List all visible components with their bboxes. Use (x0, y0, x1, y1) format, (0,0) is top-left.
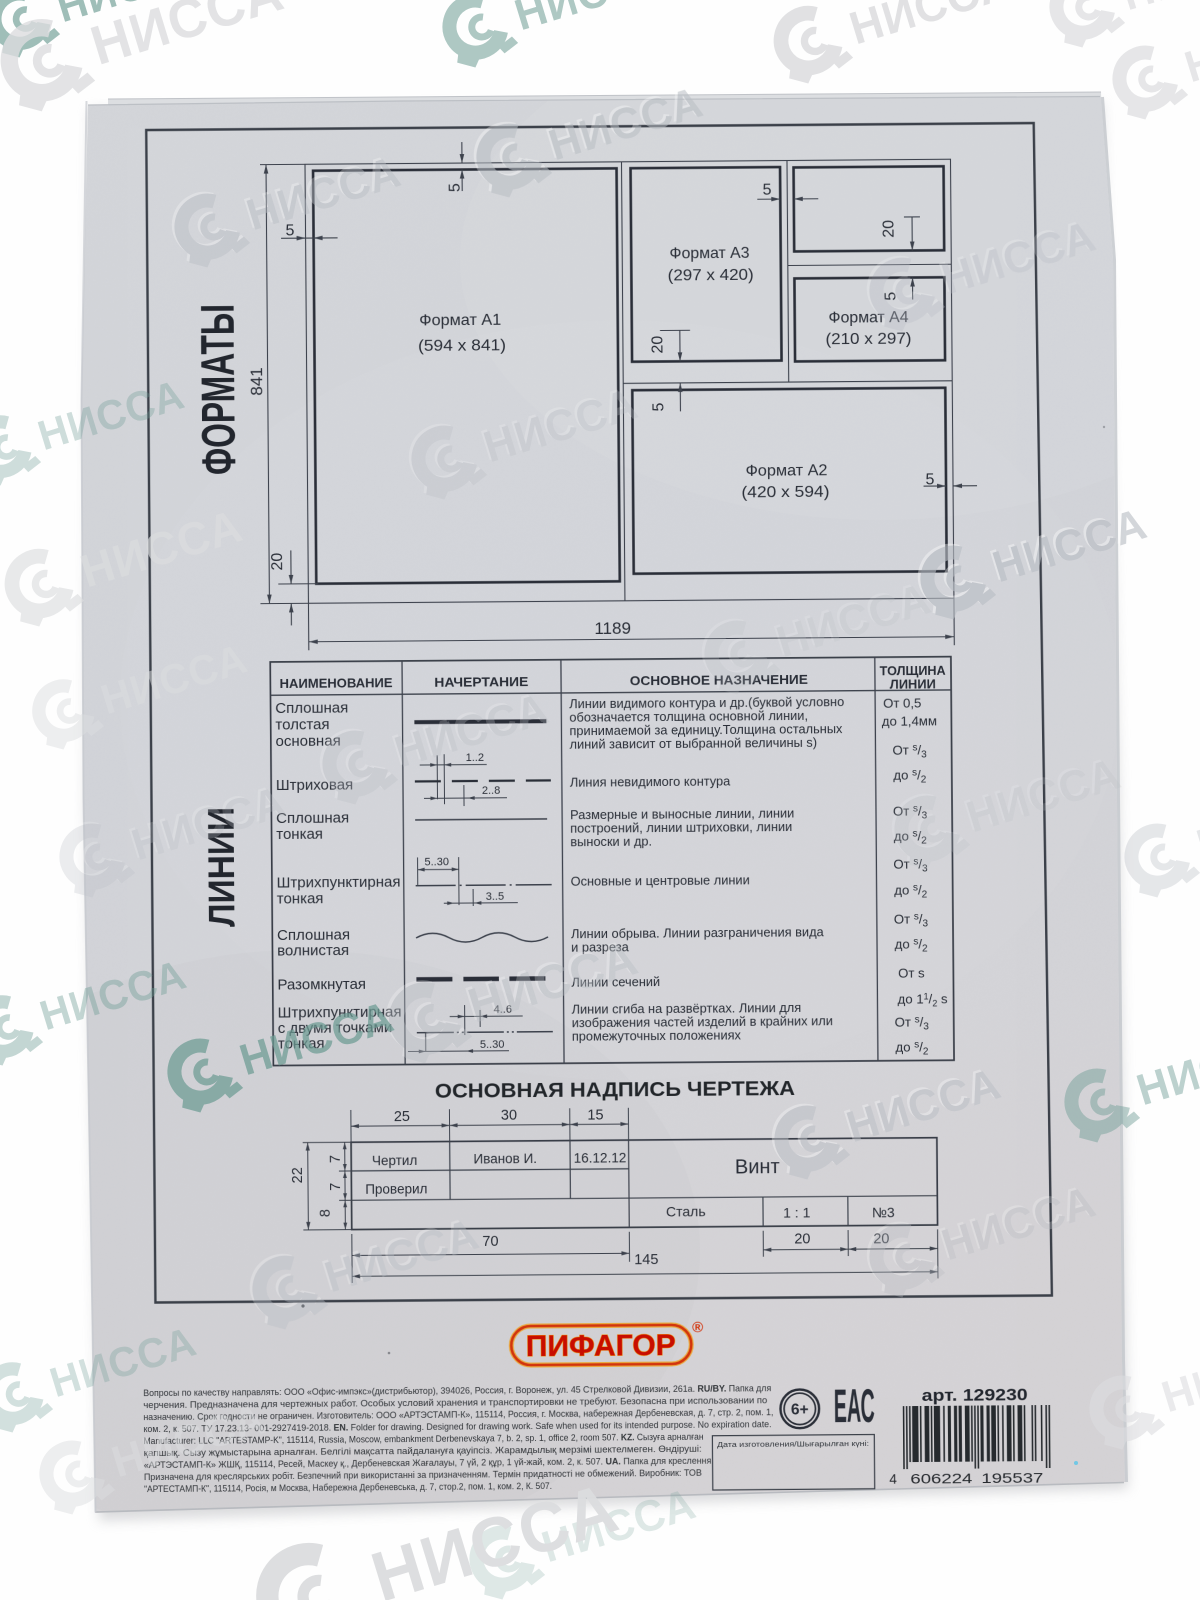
svg-text:4: 4 (889, 1472, 897, 1487)
svg-text:толстая: толстая (275, 716, 329, 733)
svg-text:ЕАС: ЕАС (834, 1379, 875, 1432)
svg-text:Проверил: Проверил (365, 1181, 427, 1196)
svg-text:2..8: 2..8 (482, 785, 500, 797)
svg-text:195537: 195537 (981, 1471, 1043, 1486)
svg-text:выноски и др.: выноски и др. (570, 834, 652, 850)
svg-text:Формат А1: Формат А1 (419, 312, 501, 330)
svg-text:Линия невидимого контура: Линия невидимого контура (570, 773, 731, 789)
svg-text:22: 22 (290, 1167, 306, 1183)
svg-text:Формат А3: Формат А3 (669, 245, 749, 263)
svg-text:ОСНОВНАЯ НАДПИСЬ ЧЕРТЕЖА: ОСНОВНАЯ НАДПИСЬ ЧЕРТЕЖА (435, 1078, 795, 1103)
svg-text:Иванов И.: Иванов И. (473, 1151, 537, 1166)
svg-text:30: 30 (501, 1108, 517, 1124)
svg-text:НАЧЕРТАНИЕ: НАЧЕРТАНИЕ (434, 674, 528, 690)
svg-text:арт. 129230: арт. 129230 (922, 1386, 1028, 1405)
svg-text:1189: 1189 (594, 619, 631, 638)
svg-text:№3: №3 (872, 1204, 895, 1220)
svg-text:5..30: 5..30 (424, 856, 449, 868)
svg-text:до 11/2 s: до 11/2 s (898, 991, 949, 1008)
svg-text:8: 8 (318, 1209, 334, 1217)
svg-text:20: 20 (794, 1231, 810, 1247)
svg-text:Штрихпунктирная: Штрихпунктирная (277, 874, 401, 892)
svg-text:25: 25 (394, 1109, 410, 1125)
svg-text:5: 5 (762, 182, 771, 199)
svg-text:до 1,4мм: до 1,4мм (882, 713, 937, 728)
svg-text:5: 5 (447, 183, 464, 192)
svg-text:20: 20 (649, 336, 666, 354)
svg-text:ФОРМАТЫ: ФОРМАТЫ (191, 304, 245, 475)
svg-text:линий зависит от выбранной вел: линий зависит от выбранной величины s) (570, 735, 818, 752)
svg-text:тонкая: тонкая (276, 826, 323, 843)
svg-text:7: 7 (328, 1155, 344, 1163)
svg-text:Дата изготовления/Шығарылған к: Дата изготовления/Шығарылған күні: (717, 1439, 869, 1449)
svg-text:От s: От s (898, 965, 925, 980)
svg-text:Чертил: Чертил (372, 1153, 417, 1168)
svg-text:Основные и центровые линии: Основные и центровые линии (571, 872, 750, 888)
svg-text:промежуточных положениях: промежуточных положениях (572, 1027, 742, 1043)
svg-text:20: 20 (269, 553, 286, 571)
svg-text:5: 5 (650, 402, 667, 411)
svg-text:Сплошная: Сплошная (275, 699, 348, 717)
svg-text:Разомкнутая: Разомкнутая (277, 976, 366, 994)
svg-text:1 : 1: 1 : 1 (783, 1204, 811, 1220)
svg-text:20: 20 (880, 220, 897, 238)
svg-text:7: 7 (328, 1183, 344, 1191)
svg-text:6+: 6+ (791, 1401, 809, 1418)
svg-text:®: ® (692, 1319, 703, 1336)
svg-text:145: 145 (634, 1252, 658, 1268)
svg-text:3..5: 3..5 (486, 891, 504, 903)
svg-text:тонкая: тонкая (277, 890, 324, 907)
svg-text:606224: 606224 (910, 1471, 973, 1486)
svg-text:15: 15 (587, 1107, 603, 1123)
svg-text:70: 70 (482, 1234, 498, 1250)
svg-text:Винт: Винт (735, 1156, 780, 1178)
svg-text:16.12.12: 16.12.12 (574, 1150, 627, 1165)
svg-text:волнистая: волнистая (277, 942, 349, 960)
svg-text:(420 х 594): (420 х 594) (741, 484, 829, 502)
svg-text:841: 841 (247, 367, 266, 396)
svg-text:ПИФАГОР: ПИФАГОР (526, 1329, 676, 1363)
svg-text:Формат А2: Формат А2 (745, 462, 827, 480)
svg-text:(594 х 841): (594 х 841) (418, 337, 506, 355)
svg-text:От 0,5: От 0,5 (883, 695, 921, 710)
svg-text:ЛИНИИ: ЛИНИИ (890, 677, 936, 691)
svg-text:(297 х 420): (297 х 420) (668, 267, 754, 285)
svg-text:ТОЛЩИНА: ТОЛЩИНА (880, 664, 946, 679)
svg-text:5..30: 5..30 (480, 1039, 505, 1051)
svg-text:(210 х 297): (210 х 297) (825, 331, 911, 349)
svg-text:НАИМЕНОВАНИЕ: НАИМЕНОВАНИЕ (280, 675, 393, 691)
svg-text:Сталь: Сталь (666, 1203, 706, 1219)
